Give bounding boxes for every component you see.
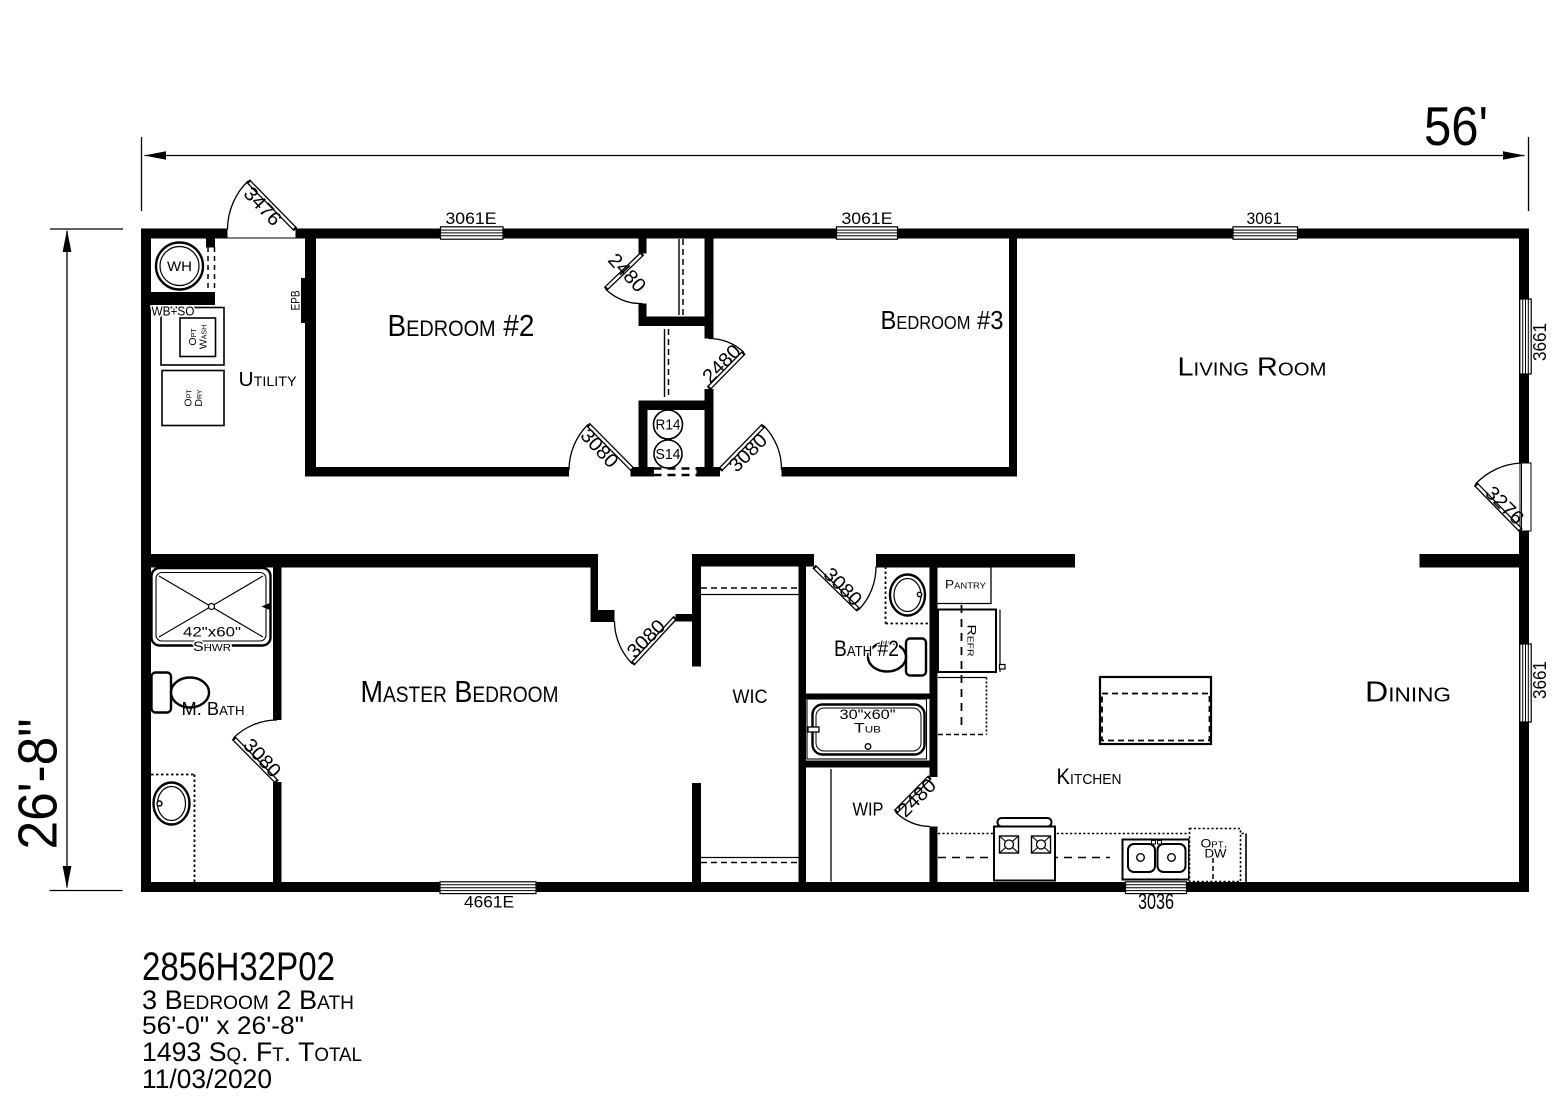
svg-text:56'-0" x 26'-8": 56'-0" x 26'-8" <box>142 1012 304 1040</box>
svg-text:26'-8": 26'-8" <box>7 719 69 850</box>
svg-text:3061: 3061 <box>1247 210 1282 228</box>
svg-text:Tub: Tub <box>854 721 881 736</box>
svg-text:WIC: WIC <box>733 687 768 708</box>
svg-text:WIP: WIP <box>853 799 884 820</box>
svg-text:Bedroom #3: Bedroom #3 <box>881 305 1004 335</box>
svg-text:R14: R14 <box>656 417 681 434</box>
svg-text:EPB: EPB <box>291 290 303 310</box>
svg-text:Bedroom #2: Bedroom #2 <box>388 308 535 343</box>
svg-text:WH: WH <box>167 258 192 274</box>
svg-text:3661: 3661 <box>1530 661 1550 699</box>
svg-text:Utility: Utility <box>239 368 298 391</box>
svg-text:OptDry: OptDry <box>183 389 206 407</box>
svg-text:3036: 3036 <box>1138 889 1174 914</box>
svg-text:Dining: Dining <box>1365 677 1451 709</box>
svg-text:3 Bedroom 2 Bath: 3 Bedroom 2 Bath <box>142 985 354 1015</box>
svg-text:Kitchen: Kitchen <box>1057 764 1122 789</box>
svg-text:Living Room: Living Room <box>1178 354 1327 382</box>
svg-text:56': 56' <box>1424 95 1488 157</box>
svg-text:DW: DW <box>1205 849 1227 861</box>
svg-text:Pantry: Pantry <box>945 580 987 592</box>
svg-text:Refr: Refr <box>965 625 979 657</box>
svg-text:Shwr: Shwr <box>193 638 231 654</box>
svg-text:3661: 3661 <box>1530 323 1550 361</box>
svg-text:3061E: 3061E <box>842 210 893 228</box>
svg-text:S14: S14 <box>656 446 681 463</box>
svg-text:OptWash: OptWash <box>187 325 210 349</box>
svg-text:3061E: 3061E <box>446 210 497 228</box>
svg-text:WB+SO: WB+SO <box>152 305 195 319</box>
svg-text:1493 Sq. Ft. Total: 1493 Sq. Ft. Total <box>142 1037 362 1067</box>
svg-text:M. Bath: M. Bath <box>182 699 245 719</box>
svg-text:Master Bedroom: Master Bedroom <box>361 674 559 709</box>
svg-text:Bath #2: Bath #2 <box>834 636 899 661</box>
svg-text:4661E: 4661E <box>464 893 514 912</box>
svg-text:2856H32P02: 2856H32P02 <box>142 945 335 989</box>
svg-text:11/03/2020: 11/03/2020 <box>142 1064 272 1094</box>
